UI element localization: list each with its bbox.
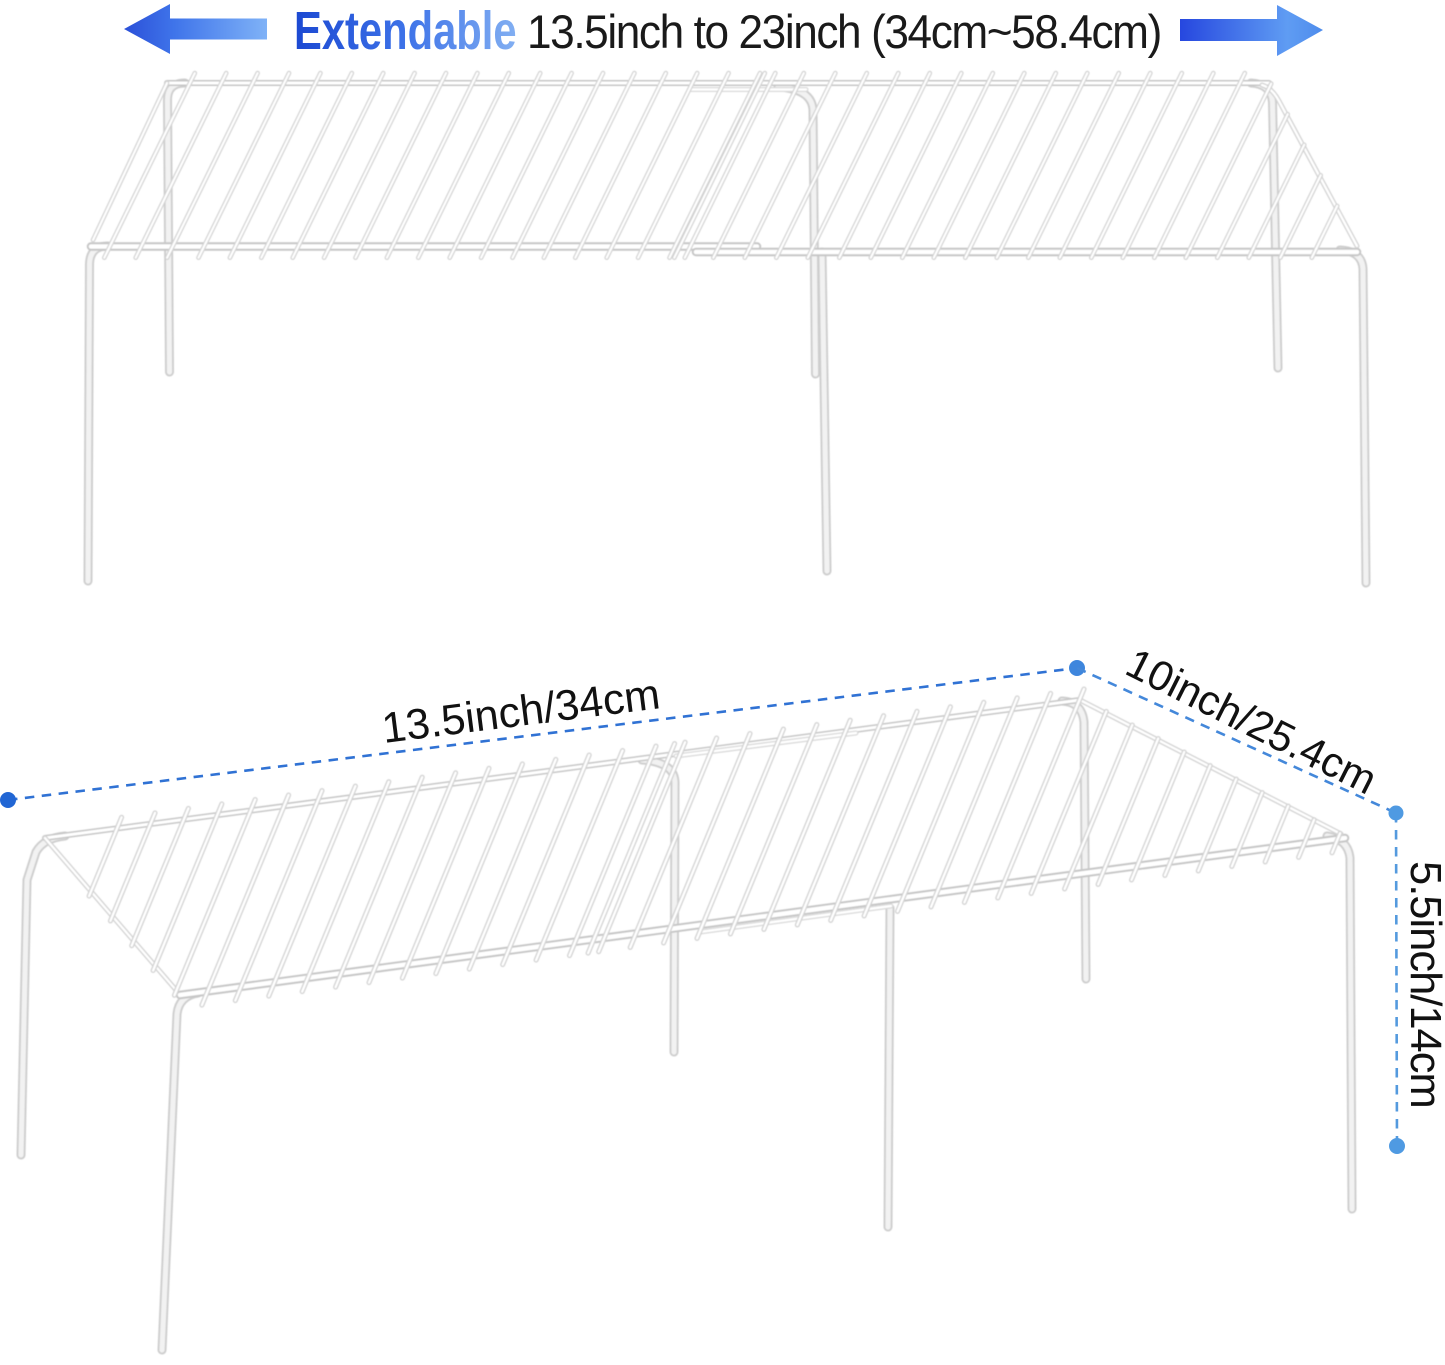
svg-text:13.5inch to 23inch (34cm~58.4c: 13.5inch to 23inch (34cm~58.4cm)	[527, 6, 1161, 59]
svg-text:5.5inch/14cm: 5.5inch/14cm	[1401, 861, 1445, 1108]
svg-text:Extendable: Extendable	[294, 2, 517, 61]
